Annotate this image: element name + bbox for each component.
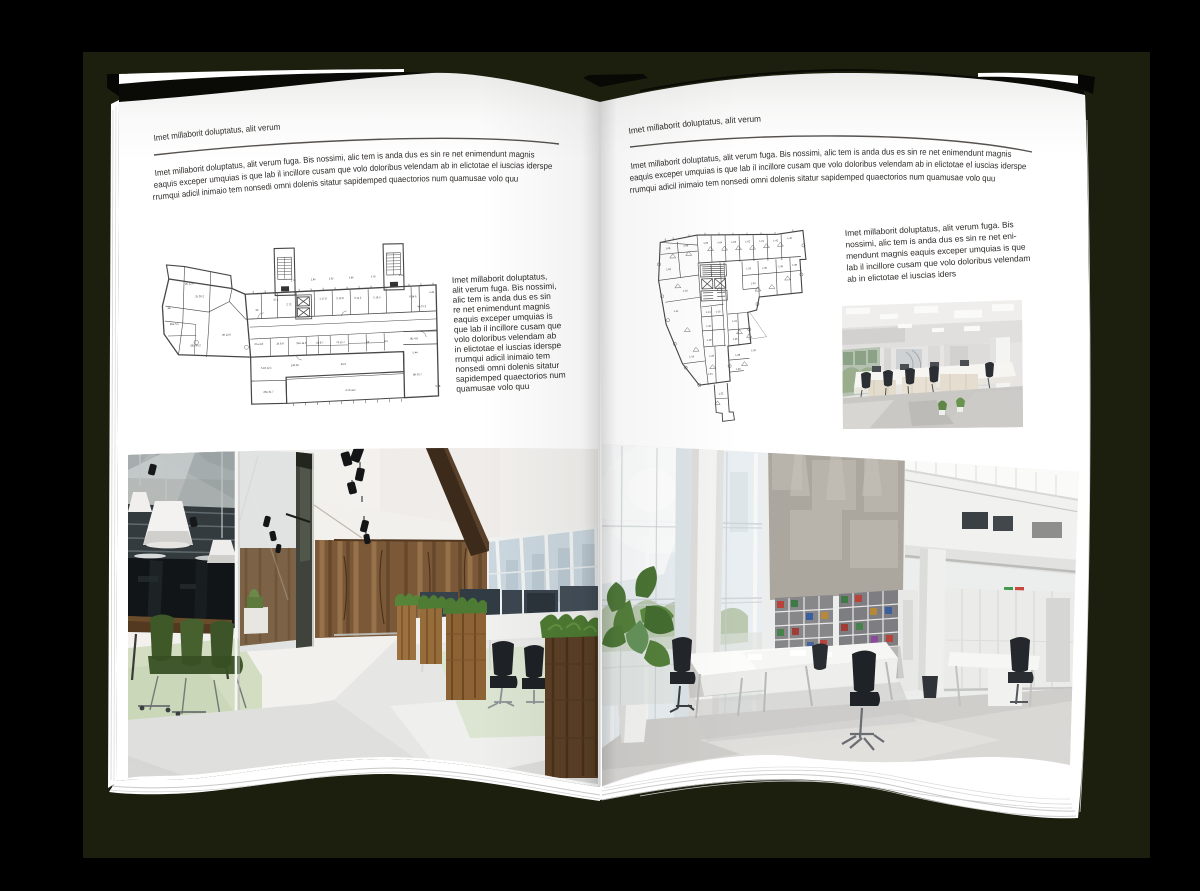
- svg-text:1-36: 1-36: [778, 265, 784, 268]
- svg-text:3.86: 3.86: [349, 276, 354, 279]
- svg-text:7б 11.7: 7б 11.7: [336, 340, 345, 344]
- svg-text:5.78: 5.78: [371, 275, 376, 278]
- svg-text:1-30: 1-30: [751, 349, 757, 352]
- svg-text:1-34: 1-34: [751, 282, 757, 285]
- svg-text:1 17.8: 1 17.8: [319, 296, 327, 300]
- svg-text:8б 50.7: 8б 50.7: [413, 372, 422, 376]
- svg-text:94.3: 94.3: [341, 362, 347, 366]
- svg-text:1-35: 1-35: [762, 267, 768, 270]
- svg-text:2.85: 2.85: [311, 278, 316, 281]
- svg-text:4Б: 4Б: [167, 306, 171, 310]
- svg-text:26Б 40.2: 26Б 40.2: [190, 343, 201, 347]
- svg-text:2Бв 5.1: 2Бв 5.1: [170, 322, 179, 326]
- svg-text:4в 37.2: 4в 37.2: [417, 304, 426, 308]
- svg-text:4.5: 4.5: [384, 339, 388, 343]
- svg-text:37.1: 37.1: [273, 297, 279, 301]
- svg-text:2.76: 2.76: [291, 279, 296, 282]
- svg-text:1-01: 1-01: [759, 240, 765, 243]
- svg-text:1-02: 1-02: [745, 240, 751, 243]
- svg-text:1.45: 1.45: [399, 274, 404, 277]
- svg-text:2 13.8: 2 13.8: [336, 296, 344, 300]
- svg-text:1-40: 1-40: [787, 237, 793, 240]
- svg-text:1-33: 1-33: [746, 267, 752, 270]
- svg-text:5 16.5: 5 16.5: [373, 295, 381, 299]
- svg-text:1-38: 1-38: [792, 264, 798, 267]
- svg-text:9.38: 9.38: [435, 384, 441, 388]
- svg-text:35а 14.6: 35а 14.6: [296, 341, 307, 345]
- svg-text:27а 4.8: 27а 4.8: [254, 342, 263, 346]
- svg-text:26 12.6: 26 12.6: [222, 333, 231, 337]
- svg-text:5.43 12.1: 5.43 12.1: [261, 366, 272, 370]
- svg-text:2.92: 2.92: [329, 277, 334, 280]
- svg-text:23а 31.7: 23а 31.7: [263, 390, 274, 394]
- svg-text:1.45: 1.45: [429, 290, 435, 294]
- svg-text:6 24.6: 6 24.6: [409, 294, 417, 298]
- svg-text:2а 9.8: 2а 9.8: [276, 341, 284, 345]
- svg-text:2.72: 2.72: [286, 302, 292, 306]
- svg-text:8Б 4.8: 8Б 4.8: [410, 336, 418, 340]
- svg-text:5.44: 5.44: [412, 350, 418, 354]
- svg-text:2Б 12.6: 2Б 12.6: [185, 281, 195, 285]
- svg-text:ба 8.7: ба 8.7: [316, 340, 324, 344]
- svg-text:2 об зал: 2 об зал: [345, 388, 356, 392]
- svg-text:140.00: 140.00: [291, 363, 300, 367]
- svg-text:1-42: 1-42: [773, 239, 779, 242]
- svg-text:25 39.2: 25 39.2: [195, 294, 204, 298]
- svg-text:3 11.2: 3 11.2: [354, 296, 362, 300]
